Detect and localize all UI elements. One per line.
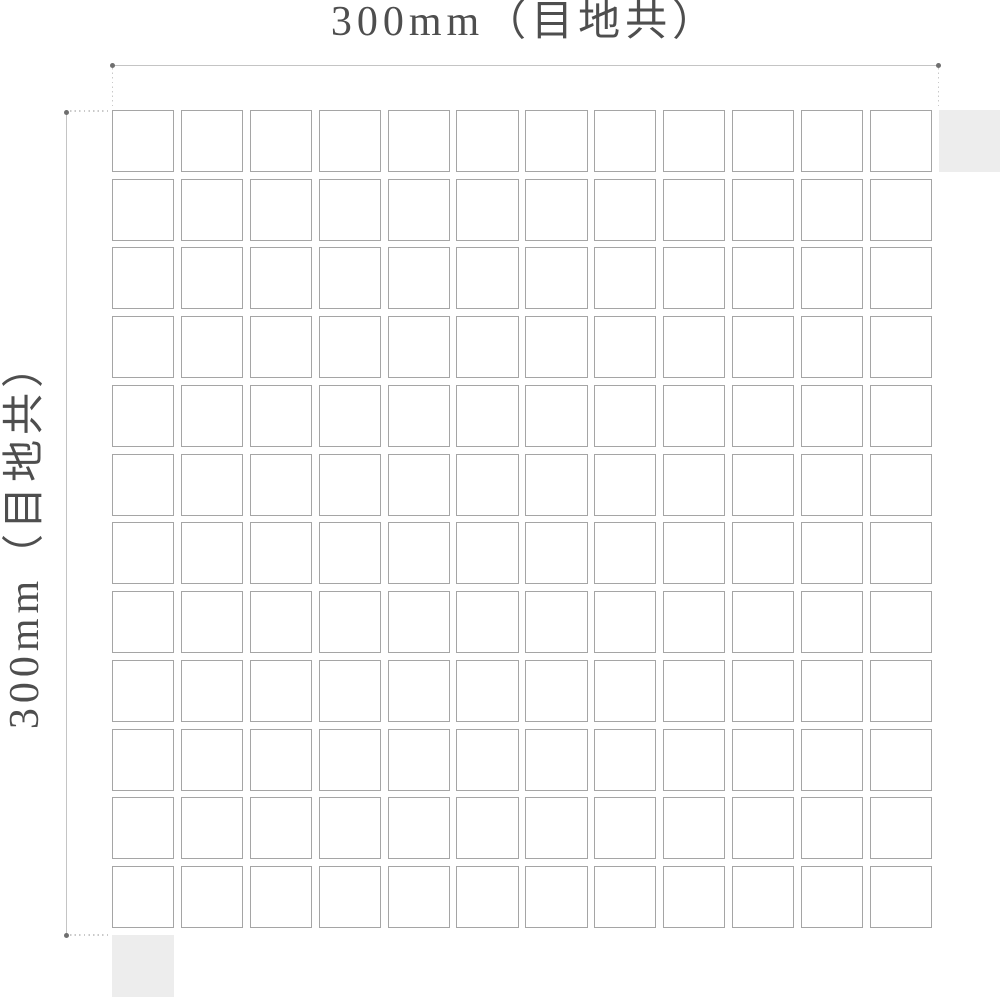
tile	[388, 591, 450, 653]
tile	[594, 454, 656, 516]
tile	[732, 179, 794, 241]
tile	[594, 591, 656, 653]
tile	[250, 110, 312, 172]
tile	[663, 179, 725, 241]
tile	[181, 591, 243, 653]
tile	[456, 454, 518, 516]
tile	[456, 316, 518, 378]
tile	[388, 316, 450, 378]
tile	[112, 591, 174, 653]
tile	[801, 110, 863, 172]
tile	[319, 110, 381, 172]
tile	[456, 522, 518, 584]
tile	[870, 797, 932, 859]
tile	[319, 591, 381, 653]
tile	[181, 729, 243, 791]
tile	[870, 522, 932, 584]
tile	[801, 660, 863, 722]
tile	[181, 797, 243, 859]
tile	[663, 247, 725, 309]
tile	[112, 797, 174, 859]
tile-grid	[112, 110, 932, 928]
tile	[181, 454, 243, 516]
tile	[456, 660, 518, 722]
tile	[319, 797, 381, 859]
tile	[663, 522, 725, 584]
tile	[388, 660, 450, 722]
extension-line-left-bottom	[70, 934, 110, 935]
tile	[456, 179, 518, 241]
tile	[732, 866, 794, 928]
tile	[250, 660, 312, 722]
tile	[663, 729, 725, 791]
tile	[525, 797, 587, 859]
tile	[181, 385, 243, 447]
tile	[801, 522, 863, 584]
tile	[525, 247, 587, 309]
tile	[456, 385, 518, 447]
tile	[801, 454, 863, 516]
tile	[112, 179, 174, 241]
tile	[112, 385, 174, 447]
extension-line-top-left	[112, 68, 113, 108]
tile	[250, 316, 312, 378]
tile	[250, 454, 312, 516]
tile	[732, 522, 794, 584]
tile	[870, 247, 932, 309]
top-dimension-label: 300mm（目地共）	[112, 0, 938, 44]
tile	[319, 454, 381, 516]
tile	[732, 110, 794, 172]
tile	[319, 247, 381, 309]
tile	[112, 729, 174, 791]
tile	[663, 454, 725, 516]
tile	[525, 866, 587, 928]
tile	[388, 454, 450, 516]
tile	[801, 866, 863, 928]
tile	[250, 729, 312, 791]
tile	[801, 247, 863, 309]
tile	[732, 591, 794, 653]
tile	[250, 797, 312, 859]
tile	[112, 522, 174, 584]
partial-tile-top-right	[939, 110, 1000, 172]
tile	[663, 591, 725, 653]
tile	[732, 316, 794, 378]
tile	[732, 729, 794, 791]
tile	[250, 247, 312, 309]
tile	[319, 660, 381, 722]
tile	[250, 591, 312, 653]
tile	[181, 316, 243, 378]
tile	[594, 729, 656, 791]
tile	[870, 660, 932, 722]
tile	[388, 179, 450, 241]
extension-line-top-right	[938, 68, 939, 109]
tile	[112, 660, 174, 722]
tile	[525, 522, 587, 584]
tile	[112, 110, 174, 172]
tile	[870, 729, 932, 791]
tile	[525, 729, 587, 791]
tile	[732, 385, 794, 447]
tile	[250, 179, 312, 241]
tile	[388, 385, 450, 447]
tile	[732, 660, 794, 722]
tile	[801, 316, 863, 378]
tile	[594, 797, 656, 859]
tile	[388, 866, 450, 928]
left-dimension-line	[66, 112, 67, 935]
tile	[801, 591, 863, 653]
tile	[663, 866, 725, 928]
tile	[663, 385, 725, 447]
tile	[456, 591, 518, 653]
tile	[388, 522, 450, 584]
tile	[594, 110, 656, 172]
tile	[801, 385, 863, 447]
tile	[181, 660, 243, 722]
tile	[525, 385, 587, 447]
tile	[319, 179, 381, 241]
tile	[388, 247, 450, 309]
tile	[250, 522, 312, 584]
top-dimension-line	[112, 65, 938, 66]
tile	[388, 797, 450, 859]
extension-line-left-top	[70, 110, 110, 111]
tile	[663, 660, 725, 722]
tile	[456, 866, 518, 928]
tile	[594, 866, 656, 928]
tile	[319, 522, 381, 584]
tile	[732, 454, 794, 516]
left-dimension-label: 300mm（目地共）	[3, 341, 47, 729]
tile	[870, 866, 932, 928]
tile	[594, 247, 656, 309]
tile	[594, 385, 656, 447]
tile	[870, 316, 932, 378]
tile	[594, 316, 656, 378]
tile	[456, 110, 518, 172]
dimension-endpoint-dot	[64, 933, 69, 938]
tile	[181, 247, 243, 309]
tile	[388, 110, 450, 172]
tile	[456, 797, 518, 859]
tile	[112, 454, 174, 516]
tile	[594, 660, 656, 722]
tile-sheet-drawing: 300mm（目地共） 300mm（目地共）	[0, 0, 1000, 997]
tile	[663, 797, 725, 859]
tile	[112, 316, 174, 378]
tile	[112, 866, 174, 928]
tile	[319, 385, 381, 447]
tile	[250, 385, 312, 447]
tile	[801, 797, 863, 859]
tile	[525, 316, 587, 378]
tile	[525, 660, 587, 722]
tile	[388, 729, 450, 791]
tile	[525, 179, 587, 241]
tile	[525, 454, 587, 516]
tile	[319, 316, 381, 378]
tile	[319, 866, 381, 928]
dimension-endpoint-dot	[64, 110, 69, 115]
tile	[801, 729, 863, 791]
tile	[456, 729, 518, 791]
tile	[456, 247, 518, 309]
tile	[801, 179, 863, 241]
tile	[181, 866, 243, 928]
tile	[663, 316, 725, 378]
tile	[181, 522, 243, 584]
tile	[250, 866, 312, 928]
tile	[732, 247, 794, 309]
tile	[594, 522, 656, 584]
tile	[870, 591, 932, 653]
tile	[870, 179, 932, 241]
tile	[663, 110, 725, 172]
tile	[594, 179, 656, 241]
tile	[112, 247, 174, 309]
tile	[181, 179, 243, 241]
tile	[870, 385, 932, 447]
tile	[525, 110, 587, 172]
tile	[870, 110, 932, 172]
tile	[525, 591, 587, 653]
tile	[181, 110, 243, 172]
tile	[732, 797, 794, 859]
tile	[319, 729, 381, 791]
partial-tile-bottom-left	[112, 935, 174, 997]
tile	[870, 454, 932, 516]
